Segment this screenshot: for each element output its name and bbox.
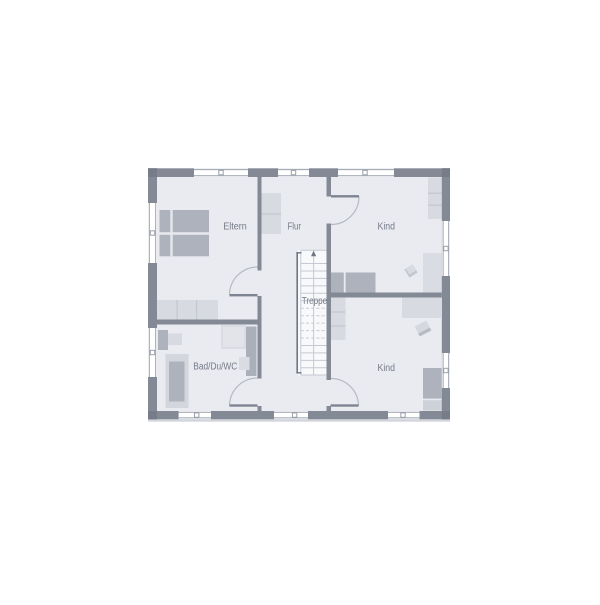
svg-text:Treppe: Treppe bbox=[302, 296, 328, 307]
svg-text:Kind: Kind bbox=[378, 222, 396, 233]
svg-text:Eltern: Eltern bbox=[223, 222, 247, 233]
svg-text:Bad/Du/WC: Bad/Du/WC bbox=[193, 362, 237, 373]
svg-text:Kind: Kind bbox=[378, 363, 396, 374]
svg-text:Flur: Flur bbox=[288, 222, 302, 233]
